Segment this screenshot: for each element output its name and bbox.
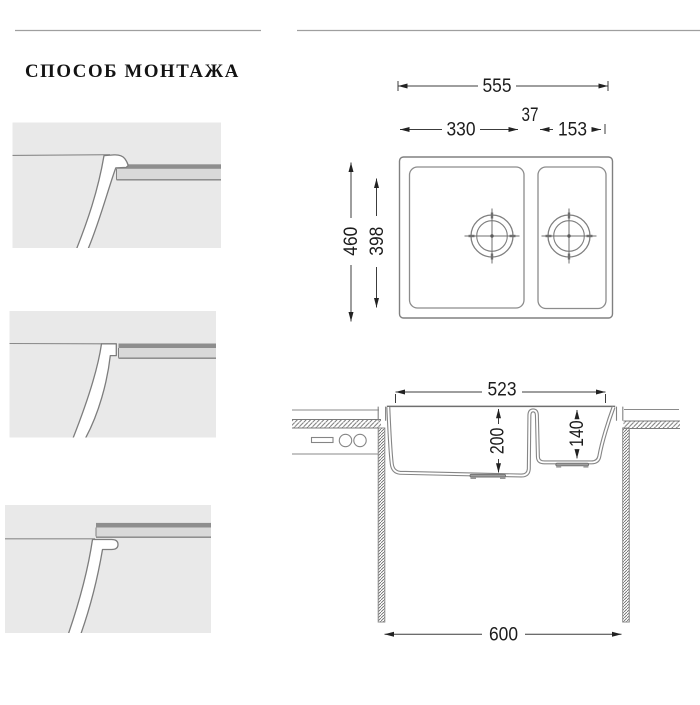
svg-text:523: 523 (488, 379, 517, 401)
svg-text:37: 37 (522, 104, 539, 126)
svg-text:140: 140 (566, 420, 588, 447)
svg-text:398: 398 (366, 227, 388, 256)
svg-text:330: 330 (447, 118, 476, 140)
svg-text:200: 200 (486, 428, 508, 455)
svg-text:460: 460 (340, 227, 362, 256)
svg-text:153: 153 (558, 118, 587, 140)
svg-text:555: 555 (483, 75, 512, 97)
svg-text:СПОСОБ МОНТАЖА: СПОСОБ МОНТАЖА (25, 61, 240, 82)
svg-text:600: 600 (489, 624, 518, 646)
